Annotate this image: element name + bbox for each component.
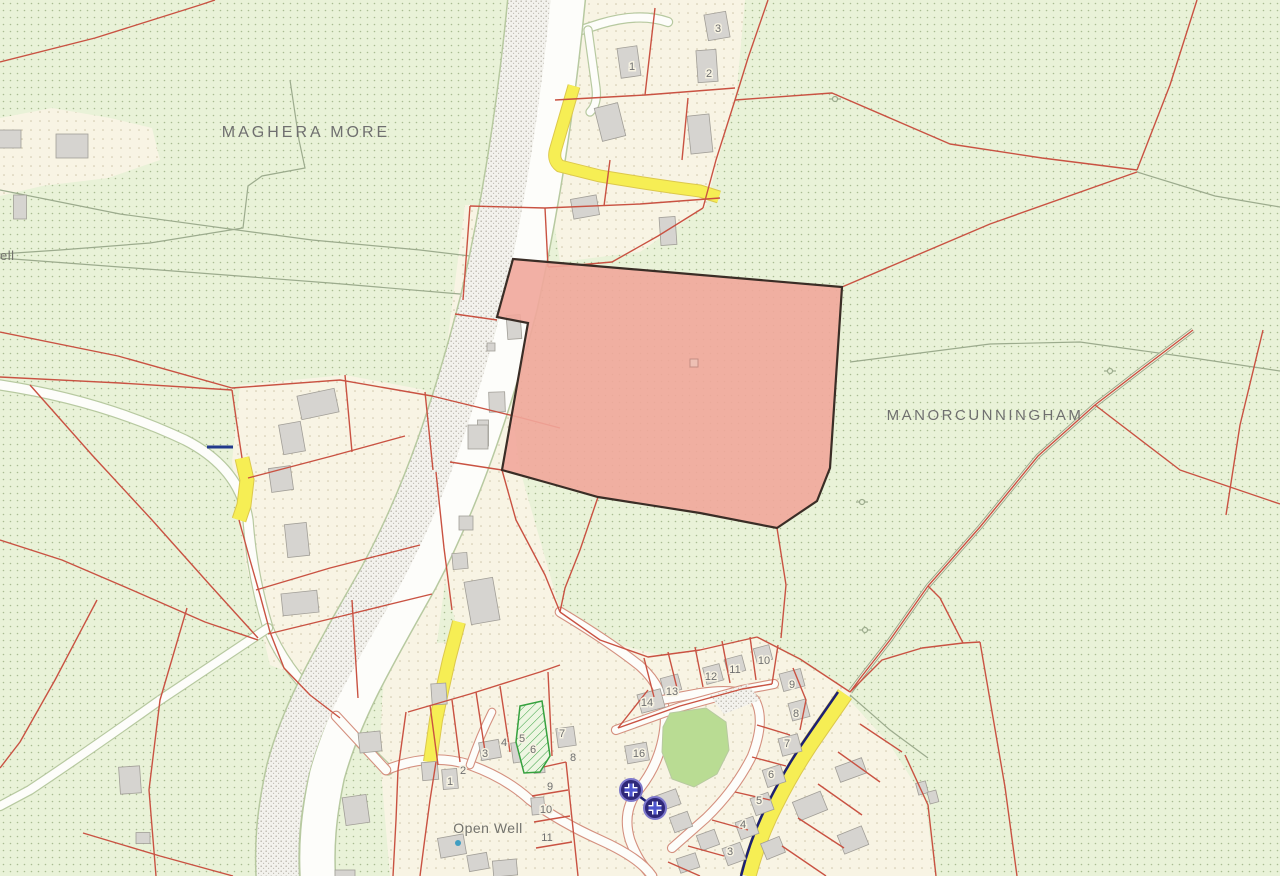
building xyxy=(281,590,319,616)
plot-number-label: 11 xyxy=(729,664,740,676)
plot-number-label: 4 xyxy=(740,819,746,831)
plot-number-label: 5 xyxy=(519,733,525,745)
plot-number-label: 6 xyxy=(768,769,774,781)
building xyxy=(492,859,517,876)
well-marker[interactable] xyxy=(620,779,642,801)
plot-number-label: 14 xyxy=(641,697,653,709)
plot-number-label: 16 xyxy=(633,748,645,760)
building xyxy=(119,766,142,794)
building xyxy=(487,343,495,351)
yellow-road xyxy=(239,458,247,520)
place-label: ell xyxy=(0,248,15,263)
building xyxy=(659,216,677,245)
townland-label: MANORCUNNINGHAM xyxy=(887,407,1084,424)
building xyxy=(136,833,150,844)
building xyxy=(0,130,21,148)
plot-number-label: 7 xyxy=(784,738,790,750)
building xyxy=(56,134,88,158)
plot-number-label: 10 xyxy=(540,804,552,816)
townland-label: MAGHERA MORE xyxy=(222,124,390,141)
building xyxy=(459,516,473,530)
parcel-center-symbol xyxy=(690,359,698,367)
building xyxy=(489,392,506,413)
plot-number-label: 10 xyxy=(758,655,770,667)
building xyxy=(687,114,713,154)
place-label: Open Well xyxy=(453,820,523,836)
plot-number-label: 4 xyxy=(501,737,507,749)
plot-number-label: 1 xyxy=(447,776,453,788)
building xyxy=(284,522,309,557)
building xyxy=(452,552,468,569)
well-marker[interactable] xyxy=(644,797,666,819)
plot-number-label: 7 xyxy=(559,728,565,740)
building xyxy=(335,870,355,876)
plot-number-label: 8 xyxy=(570,752,576,764)
plot-number-label: 5 xyxy=(756,795,762,807)
building xyxy=(437,834,466,858)
building xyxy=(14,195,27,219)
plot-number-label: 8 xyxy=(793,708,799,720)
plot-number-label: 3 xyxy=(715,23,721,35)
plot-number-label: 11 xyxy=(541,832,552,844)
plot-number-label: 2 xyxy=(460,765,466,777)
building xyxy=(358,731,382,753)
plot-number-label: 13 xyxy=(666,686,678,698)
plot-number-label: 9 xyxy=(789,679,795,691)
map-canvas[interactable]: 12310111213149876543167564321891011MAGHE… xyxy=(0,0,1280,876)
building xyxy=(279,421,306,454)
map-viewport[interactable]: 12310111213149876543167564321891011MAGHE… xyxy=(0,0,1280,876)
building xyxy=(342,794,370,825)
building xyxy=(468,425,488,449)
plot-number-label: 9 xyxy=(547,781,553,793)
plot-number-label: 3 xyxy=(727,846,733,858)
building xyxy=(467,852,489,871)
plot-number-label: 2 xyxy=(706,68,712,80)
well-point xyxy=(455,840,461,846)
plot-number-label: 1 xyxy=(629,61,635,73)
plot-number-label: 6 xyxy=(530,744,536,756)
plot-number-label: 12 xyxy=(705,671,717,683)
plot-number-label: 3 xyxy=(482,748,488,760)
